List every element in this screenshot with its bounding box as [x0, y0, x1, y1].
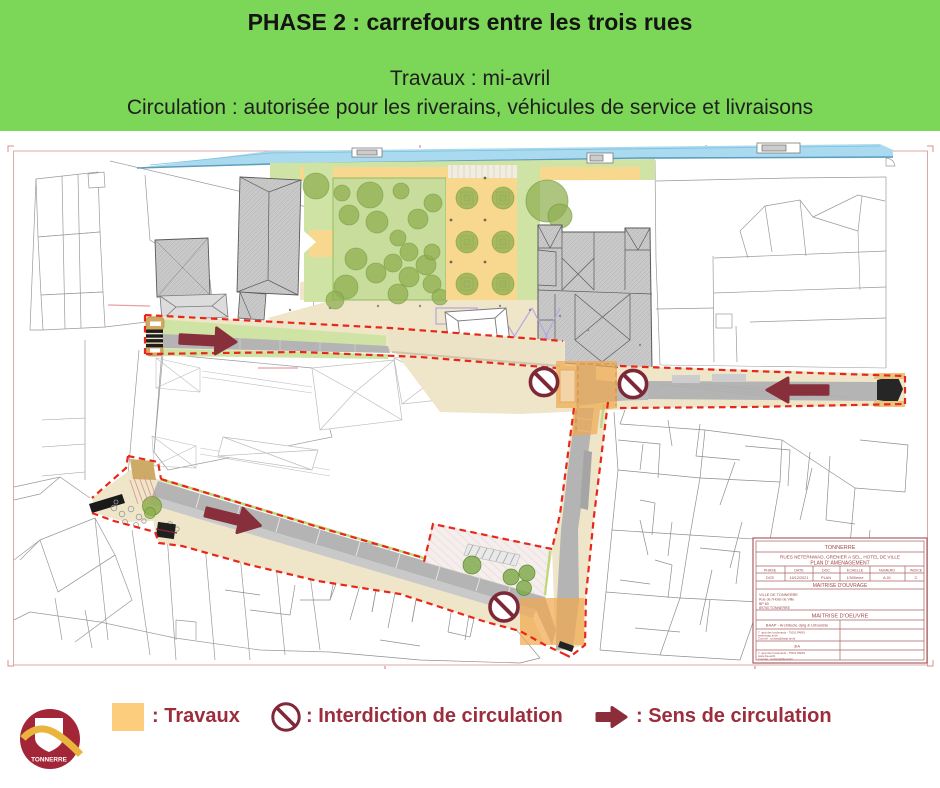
svg-text:16/12/2021: 16/12/2021 — [789, 576, 808, 580]
svg-text:PLAN: PLAN — [821, 576, 831, 580]
svg-text:3IA: 3IA — [794, 644, 800, 649]
svg-text:RUES NETERNWAD, GRENIER A SEL,: RUES NETERNWAD, GRENIER A SEL, HOTEL DE … — [780, 555, 900, 560]
svg-text:Courriel : contact@3ia.archi: Courriel : contact@3ia.archi — [758, 657, 793, 661]
svg-text:ECHELLE: ECHELLE — [847, 569, 864, 573]
svg-text:PLAN D' AMENAGEMENT: PLAN D' AMENAGEMENT — [810, 561, 869, 567]
svg-text:TONNERRE: TONNERRE — [825, 545, 856, 551]
svg-text:89700 TONNERRE: 89700 TONNERRE — [759, 606, 791, 610]
svg-text:BAAP - Architecte dplg & Urban: BAAP - Architecte dplg & Urbaniste — [766, 623, 829, 628]
svg-text:1/500eme: 1/500eme — [847, 576, 864, 580]
svg-text:TONNERRE: TONNERRE — [31, 757, 67, 764]
svg-text:Courriel : contact@baap.archi: Courriel : contact@baap.archi — [758, 637, 795, 641]
svg-text:VILLE DE TONNERRE: VILLE DE TONNERRE — [759, 593, 798, 597]
svg-text:A-01: A-01 — [883, 576, 891, 580]
svg-text:MAITRISE D'OUVRAGE: MAITRISE D'OUVRAGE — [813, 583, 868, 589]
svg-text:DOC: DOC — [822, 569, 830, 573]
svg-text:INDICE: INDICE — [910, 569, 923, 573]
svg-text:NUMERO: NUMERO — [879, 569, 895, 573]
svg-text:DCE: DCE — [766, 576, 774, 580]
svg-text:Rue de l'Hotel de Ville: Rue de l'Hotel de Ville — [759, 598, 794, 602]
svg-text:DATE: DATE — [794, 569, 804, 573]
svg-text:PHASE: PHASE — [764, 569, 777, 573]
svg-text:MAITRISE D'OEUVRE: MAITRISE D'OEUVRE — [812, 614, 869, 620]
svg-text:C: C — [915, 576, 918, 580]
